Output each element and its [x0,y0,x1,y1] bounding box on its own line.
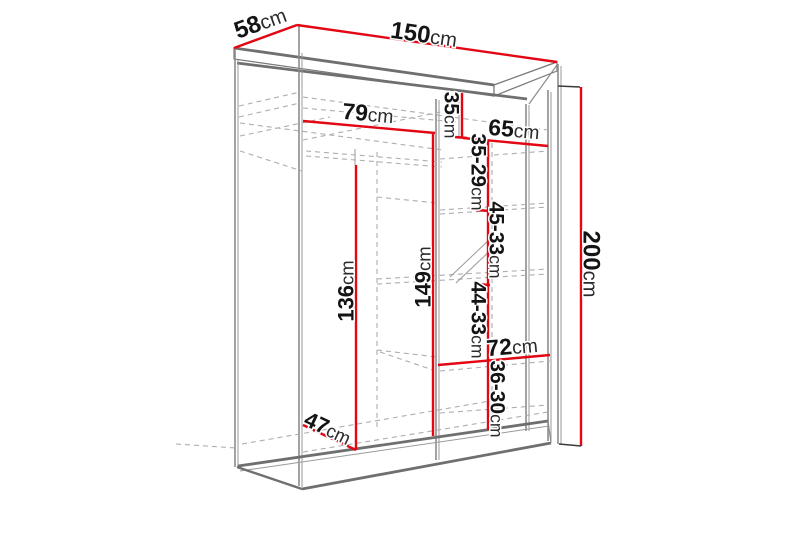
dim-label-35-29cm: 35-29cm [467,133,490,210]
dim-label-136cm: 136cm [334,260,359,321]
dim-label-45-33cm: 45-33cm [485,201,508,278]
dim-label-200cm: 200cm [578,231,605,298]
dim-label-35cm: 35cm [440,92,463,139]
dim-label-65cm: 65cm [487,114,540,144]
dim-label-72cm: 72cm [485,331,538,361]
diagram-canvas: 58cm 150cm 79cm 35cm 65cm 35-29cm 45-33c… [0,0,800,533]
dim-label-79cm: 79cm [341,98,394,128]
wardrobe-dimension-diagram: 58cm 150cm 79cm 35cm 65cm 35-29cm 45-33c… [0,0,800,533]
dim-tick-200-bottom [559,444,581,446]
dim-tick-200-top [558,86,580,87]
dim-label-47cm: 47cm [300,406,355,449]
dim-label-36-30cm: 36-30cm [486,360,509,437]
dim-label-149cm: 149cm [411,246,436,307]
wardrobe-wireframe [234,25,561,489]
